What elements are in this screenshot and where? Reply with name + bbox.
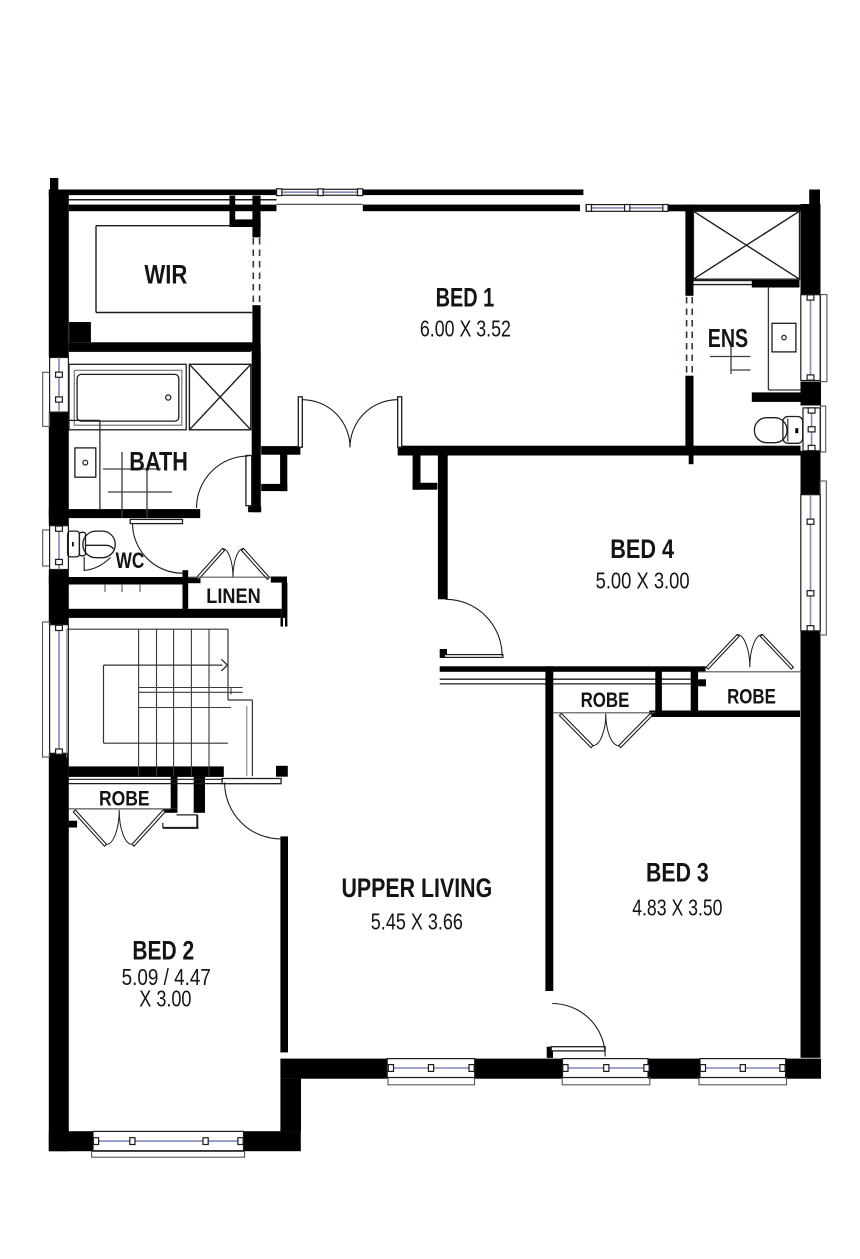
svg-text:BED 2: BED 2 xyxy=(132,936,194,966)
svg-text:ROBE: ROBE xyxy=(99,788,150,811)
svg-text:ROBE: ROBE xyxy=(581,689,630,712)
svg-text:BATH: BATH xyxy=(129,446,188,476)
svg-text:X 3.00: X 3.00 xyxy=(139,986,191,1012)
svg-text:BED 1: BED 1 xyxy=(436,282,495,312)
svg-text:BED 3: BED 3 xyxy=(646,858,709,888)
svg-text:UPPER LIVING: UPPER LIVING xyxy=(342,873,493,903)
svg-text:5.00 X 3.00: 5.00 X 3.00 xyxy=(596,568,690,594)
svg-text:WIR: WIR xyxy=(144,260,187,290)
svg-text:6.00 X 3.52: 6.00 X 3.52 xyxy=(420,316,511,342)
svg-text:ENS: ENS xyxy=(708,323,749,353)
svg-text:5.45 X 3.66: 5.45 X 3.66 xyxy=(371,909,463,935)
svg-text:4.83 X 3.50: 4.83 X 3.50 xyxy=(632,895,722,921)
svg-text:LINEN: LINEN xyxy=(206,585,260,608)
svg-text:ROBE: ROBE xyxy=(727,686,776,709)
svg-text:WC: WC xyxy=(116,548,145,573)
svg-text:BED 4: BED 4 xyxy=(610,534,674,564)
